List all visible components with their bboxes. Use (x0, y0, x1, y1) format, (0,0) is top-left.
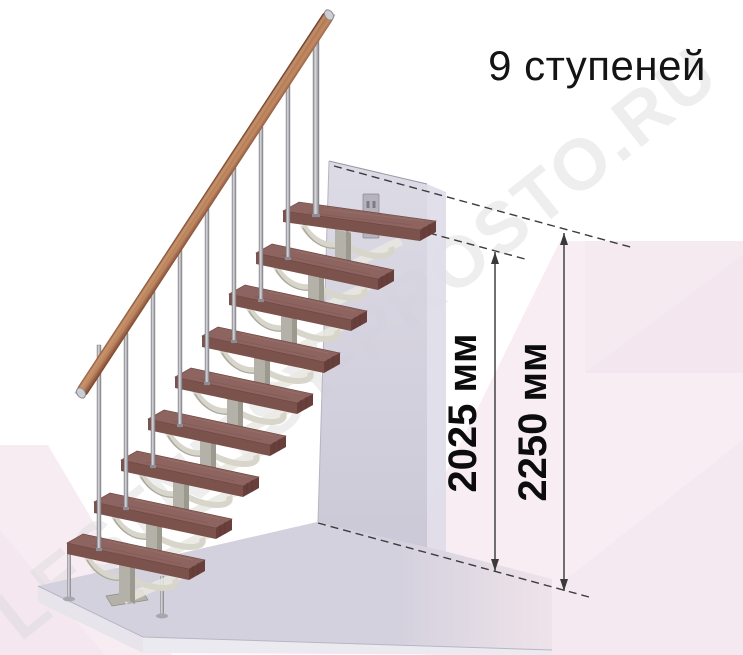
dimension-label-2025: 2025 мм (441, 333, 485, 492)
baluster-foot (150, 465, 156, 468)
baluster-rod (232, 168, 236, 343)
baluster-rod (124, 333, 128, 510)
baluster-foot (312, 214, 320, 217)
stair-height-diagram: LESTNITSY-PROSTO.RU (0, 0, 743, 655)
front-leg (67, 554, 71, 598)
baluster-foot (123, 507, 129, 510)
baluster-foot (177, 424, 183, 427)
baluster-foot (96, 548, 102, 551)
baluster-rod (178, 250, 182, 427)
baluster-foot (258, 299, 264, 302)
baluster-rod (205, 209, 209, 385)
baluster-foot (204, 382, 210, 385)
baluster-rod (259, 127, 263, 302)
dimension-label-2250: 2250 мм (511, 342, 555, 501)
diagram-canvas: LESTNITSY-PROSTO.RU (0, 0, 743, 655)
baluster-foot (285, 257, 291, 260)
baluster-rod (151, 291, 155, 468)
arrowhead-up-icon (560, 233, 568, 245)
baluster-rod (313, 40, 319, 217)
baluster-foot (231, 340, 237, 343)
baluster-rod (286, 85, 290, 260)
page-title: 9 ступеней (488, 42, 706, 89)
